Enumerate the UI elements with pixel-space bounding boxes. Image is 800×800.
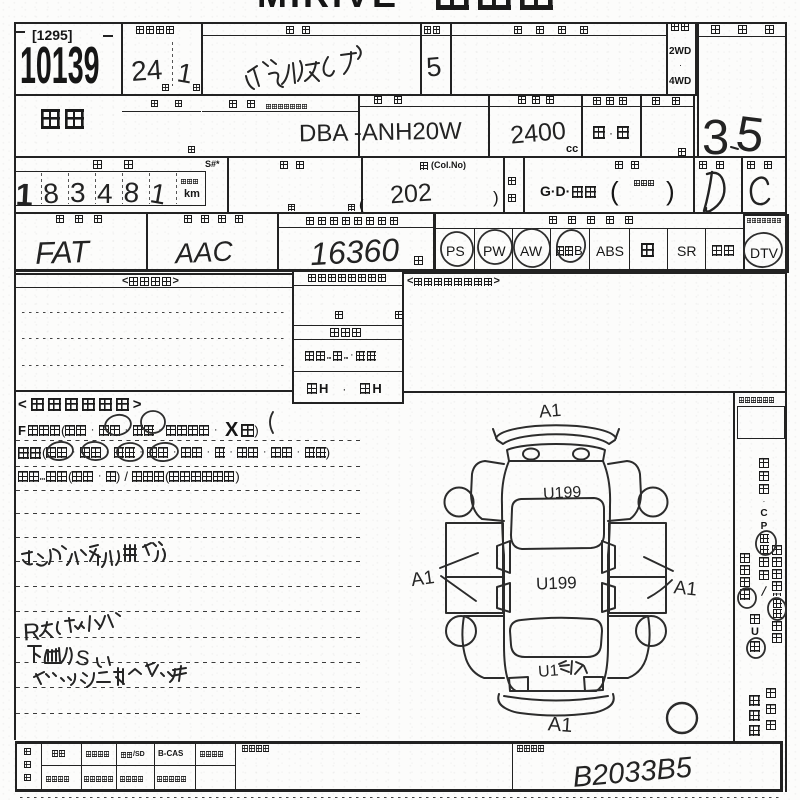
svg-text:A1: A1 (410, 567, 436, 591)
svg-text:1: 1 (175, 57, 195, 89)
svg-text:A1: A1 (673, 577, 698, 600)
svg-text:1: 1 (148, 177, 169, 210)
svg-text:U1: U1 (538, 662, 560, 680)
svg-text:FAT: FAT (34, 234, 91, 271)
svg-text:R: R (22, 619, 41, 647)
svg-text:3: 3 (70, 177, 86, 208)
svg-text:16360: 16360 (309, 231, 400, 272)
svg-text:5: 5 (733, 107, 767, 164)
svg-text:U199: U199 (543, 484, 582, 503)
svg-text:8: 8 (42, 177, 60, 209)
svg-text:1: 1 (15, 177, 34, 213)
svg-text:5: 5 (425, 51, 443, 82)
svg-text:S: S (75, 646, 91, 670)
svg-text:DBA -ANH20W: DBA -ANH20W (299, 118, 462, 148)
svg-text:8: 8 (123, 177, 141, 209)
svg-text:A1: A1 (538, 400, 562, 422)
svg-text:24: 24 (130, 54, 163, 87)
svg-text:2400: 2400 (509, 117, 567, 150)
svg-text:U199: U199 (536, 573, 577, 593)
svg-text:4: 4 (97, 178, 113, 209)
svg-text:202: 202 (389, 179, 433, 210)
svg-text:A1: A1 (547, 713, 573, 737)
svg-text:B2033B5: B2033B5 (571, 751, 694, 793)
svg-text:AAC: AAC (172, 235, 234, 269)
svg-text:3: 3 (702, 111, 729, 165)
